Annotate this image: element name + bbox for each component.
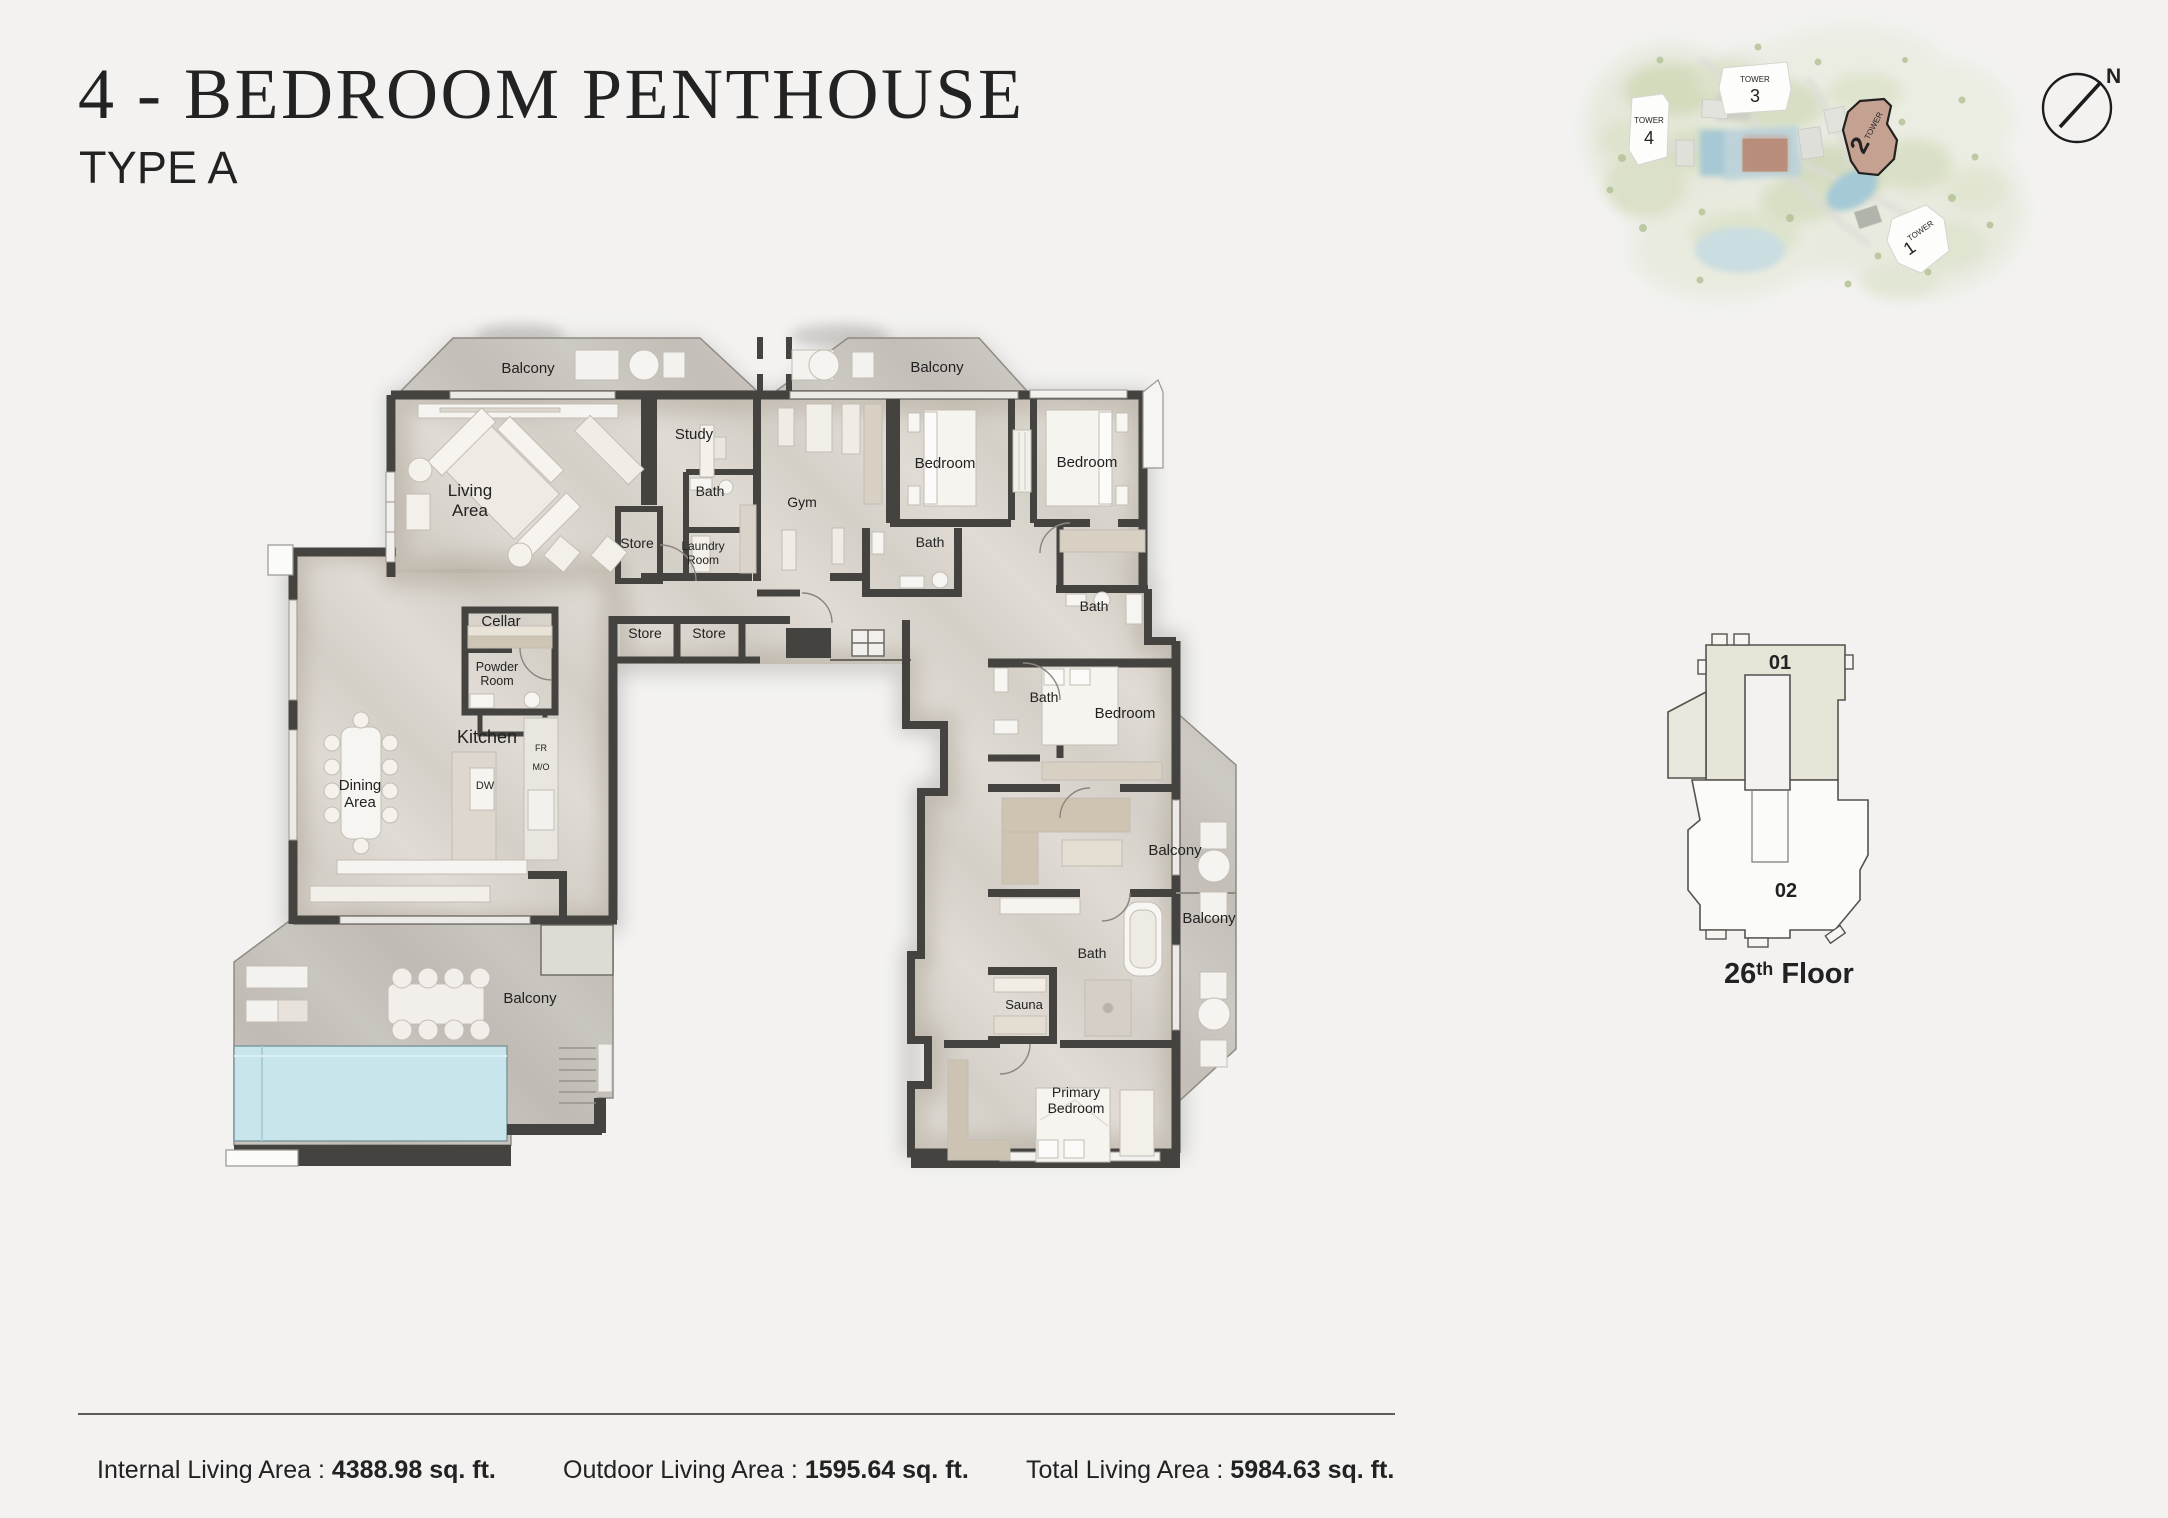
svg-text:TOWER: TOWER xyxy=(1740,75,1770,84)
svg-text:N: N xyxy=(2106,65,2121,88)
svg-text:Cellar: Cellar xyxy=(481,613,520,630)
svg-text:26th Floor: 26th Floor xyxy=(1724,958,1854,990)
svg-text:Study: Study xyxy=(675,426,714,443)
svg-text:Balcony: Balcony xyxy=(503,990,557,1007)
svg-text:Balcony: Balcony xyxy=(910,359,964,376)
svg-text:Outdoor Living Area : 1595.64: Outdoor Living Area : 1595.64 sq. ft. xyxy=(563,1456,969,1484)
svg-text:DW: DW xyxy=(476,780,495,792)
svg-text:TYPE A: TYPE A xyxy=(79,142,238,193)
svg-text:Bath: Bath xyxy=(1030,689,1059,705)
svg-text:Balcony: Balcony xyxy=(1182,910,1236,927)
svg-text:Store: Store xyxy=(620,535,654,551)
svg-text:Laundry: Laundry xyxy=(681,539,724,553)
svg-text:Gym: Gym xyxy=(787,494,817,510)
svg-text:Total Living Area : 5984.63 sq: Total Living Area : 5984.63 sq. ft. xyxy=(1026,1456,1394,1484)
svg-text:Room: Room xyxy=(687,553,719,567)
svg-text:Kitchen: Kitchen xyxy=(457,727,517,747)
svg-text:Dining: Dining xyxy=(339,777,382,794)
svg-text:Balcony: Balcony xyxy=(1148,842,1202,859)
svg-text:Bath: Bath xyxy=(696,483,725,499)
svg-text:3: 3 xyxy=(1750,86,1760,106)
svg-text:4: 4 xyxy=(1644,128,1654,148)
svg-text:Sauna: Sauna xyxy=(1005,997,1043,1012)
svg-text:Store: Store xyxy=(628,625,662,641)
svg-text:Area: Area xyxy=(452,501,488,520)
svg-text:M/O: M/O xyxy=(533,762,550,772)
svg-text:Bedroom: Bedroom xyxy=(1048,1100,1105,1116)
svg-text:TOWER: TOWER xyxy=(1634,116,1664,125)
svg-text:Bedroom: Bedroom xyxy=(915,455,976,472)
svg-text:Area: Area xyxy=(344,794,376,811)
svg-text:FR: FR xyxy=(535,743,547,753)
svg-text:Internal Living Area : 4388.98: Internal Living Area : 4388.98 sq. ft. xyxy=(97,1456,496,1484)
svg-text:Powder: Powder xyxy=(476,660,518,674)
svg-text:Bath: Bath xyxy=(1080,598,1109,614)
svg-text:02: 02 xyxy=(1775,880,1797,902)
svg-text:Bedroom: Bedroom xyxy=(1095,705,1156,722)
svg-text:Room: Room xyxy=(480,674,513,688)
svg-text:Living: Living xyxy=(448,481,492,500)
svg-text:Store: Store xyxy=(692,625,726,641)
svg-text:Bedroom: Bedroom xyxy=(1057,454,1118,471)
svg-text:Primary: Primary xyxy=(1052,1084,1100,1100)
svg-text:01: 01 xyxy=(1769,652,1791,674)
svg-text:Bath: Bath xyxy=(1078,945,1107,961)
svg-text:4 - BEDROOM PENTHOUSE: 4 - BEDROOM PENTHOUSE xyxy=(78,54,1025,134)
svg-text:Bath: Bath xyxy=(916,534,945,550)
svg-text:Balcony: Balcony xyxy=(501,360,555,377)
